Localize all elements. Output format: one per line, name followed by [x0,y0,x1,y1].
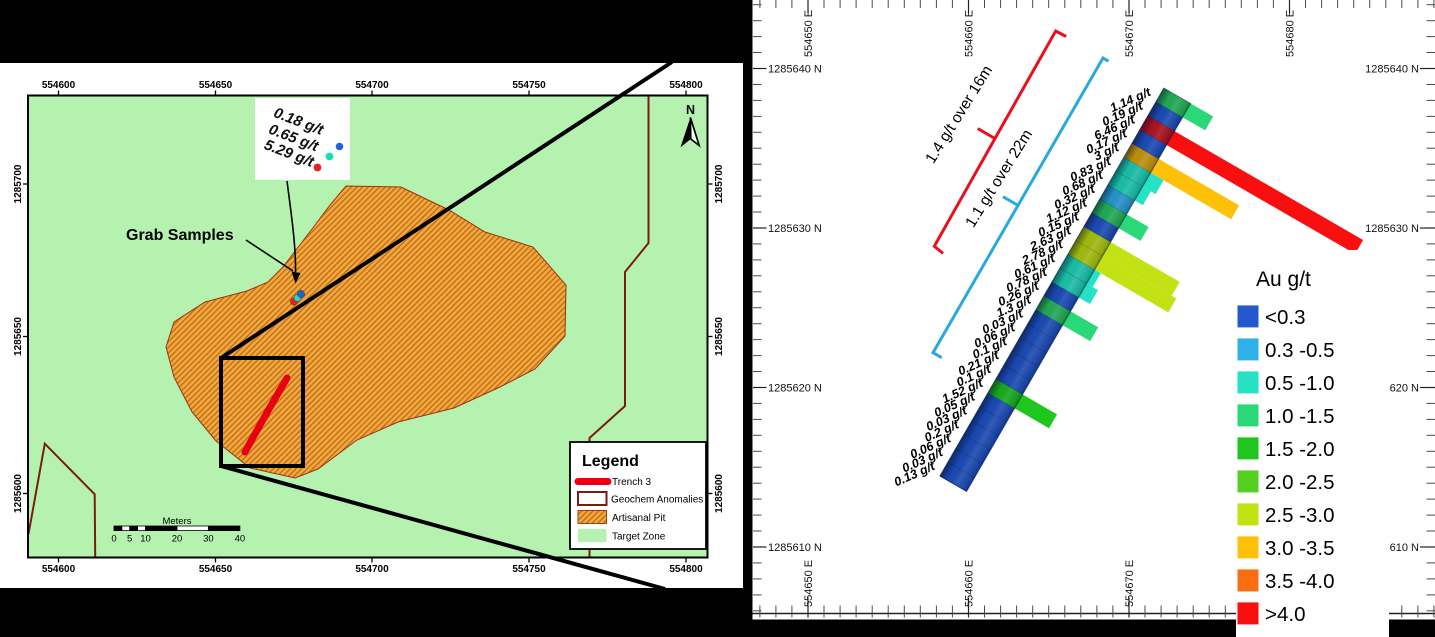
svg-text:1285620 N: 1285620 N [768,383,822,395]
svg-text:554660 E: 554660 E [964,560,976,607]
svg-text:1.4 g/t over 16m: 1.4 g/t over 16m [922,63,996,167]
svg-text:1.5 -2.0: 1.5 -2.0 [1265,438,1335,461]
svg-text:Trench 3: Trench 3 [612,477,652,488]
svg-text:1285700: 1285700 [714,164,725,203]
svg-text:554750: 554750 [512,564,546,575]
svg-text:0.5 -1.0: 0.5 -1.0 [1265,372,1335,395]
svg-text:3.0 -3.5: 3.0 -3.5 [1265,537,1335,560]
svg-text:1285630 N: 1285630 N [768,223,822,235]
svg-text:554700: 554700 [355,80,389,91]
svg-text:>4.0: >4.0 [1265,603,1305,626]
svg-text:1285600: 1285600 [13,474,24,513]
svg-text:Geochem Anomalies: Geochem Anomalies [611,495,703,506]
svg-text:554670 E: 554670 E [1124,10,1136,57]
svg-text:1285630 N: 1285630 N [1365,223,1419,235]
svg-text:554800: 554800 [669,564,703,575]
svg-text:1285610 N: 1285610 N [768,542,822,554]
svg-text:Target Zone: Target Zone [612,532,666,543]
svg-text:554600: 554600 [42,564,76,575]
svg-text:1285640 N: 1285640 N [1365,64,1419,76]
svg-text:Artisanal Pit: Artisanal Pit [612,513,666,524]
svg-text:3.5 -4.0: 3.5 -4.0 [1265,570,1335,593]
svg-text:554650: 554650 [199,564,233,575]
svg-text:<0.3: <0.3 [1265,306,1305,329]
svg-text:30: 30 [203,534,214,545]
svg-text:Legend: Legend [582,453,639,470]
svg-text:554800: 554800 [669,80,703,91]
svg-text:N: N [686,103,695,117]
svg-text:1285600: 1285600 [714,474,725,513]
svg-text:554680 E: 554680 E [1285,10,1297,57]
svg-text:1285700: 1285700 [13,164,24,203]
svg-text:20: 20 [172,534,183,545]
svg-text:10: 10 [140,534,151,545]
svg-text:1285650: 1285650 [13,317,24,356]
svg-text:0: 0 [111,534,116,545]
svg-text:554600: 554600 [42,80,76,91]
svg-text:554650 E: 554650 E [803,560,815,607]
svg-text:40: 40 [235,534,246,545]
svg-text:554670 E: 554670 E [1124,560,1136,607]
svg-text:2.5 -3.0: 2.5 -3.0 [1265,504,1335,527]
svg-text:554750: 554750 [512,80,546,91]
svg-text:Grab Samples: Grab Samples [126,227,234,244]
svg-text:554650: 554650 [199,80,233,91]
svg-text:Meters: Meters [162,516,191,527]
svg-text:1285650: 1285650 [714,317,725,356]
svg-text:2.0 -2.5: 2.0 -2.5 [1265,471,1335,494]
svg-text:Au g/t: Au g/t [1256,268,1311,291]
svg-text:1285640 N: 1285640 N [768,64,822,76]
svg-text:5: 5 [127,534,132,545]
svg-text:554700: 554700 [355,564,389,575]
svg-text:554650 E: 554650 E [803,10,815,57]
svg-text:0.3 -0.5: 0.3 -0.5 [1265,339,1335,362]
svg-text:1.0 -1.5: 1.0 -1.5 [1265,405,1335,428]
svg-text:554660 E: 554660 E [964,10,976,57]
